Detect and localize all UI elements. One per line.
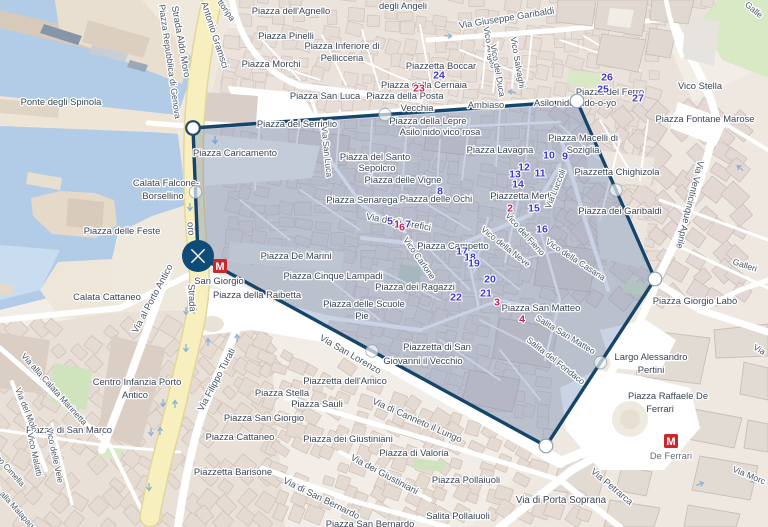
svg-text:Via di Porta Soprana: Via di Porta Soprana [516, 495, 607, 506]
svg-text:Piazza dei Giustiniani: Piazza dei Giustiniani [303, 433, 393, 444]
svg-text:Ambiaso: Ambiaso [468, 99, 504, 110]
svg-text:Piazza Stella: Piazza Stella [255, 387, 310, 398]
svg-text:Piazza delle Vigne: Piazza delle Vigne [365, 174, 442, 185]
svg-text:Piazza dell'Agnello: Piazza dell'Agnello [252, 5, 330, 16]
svg-text:9: 9 [562, 151, 568, 163]
svg-text:Ponte degli Spinola: Ponte degli Spinola [21, 96, 103, 107]
svg-text:Piazza Lavagna: Piazza Lavagna [467, 144, 535, 155]
svg-text:24: 24 [433, 70, 445, 82]
svg-text:Largo Alessandro: Largo Alessandro [615, 351, 688, 362]
svg-text:5: 5 [387, 216, 393, 228]
svg-text:Piazza San Luca: Piazza San Luca [290, 90, 361, 101]
svg-text:Piazza Pollaiuoli: Piazza Pollaiuoli [432, 474, 500, 485]
svg-text:M: M [215, 261, 224, 273]
svg-text:Piazza Campetto: Piazza Campetto [417, 240, 488, 251]
svg-text:Piazza Inferiore di: Piazza Inferiore di [304, 40, 379, 51]
svg-text:3: 3 [494, 297, 500, 309]
svg-text:Borsellino: Borsellino [142, 190, 183, 201]
svg-text:21: 21 [480, 288, 492, 300]
svg-text:7: 7 [405, 219, 411, 231]
svg-text:Antico: Antico [122, 389, 148, 400]
svg-text:4: 4 [519, 314, 525, 326]
svg-text:oro: oro [185, 221, 197, 235]
svg-text:11: 11 [534, 168, 545, 180]
svg-text:Piazza delle Scuole: Piazza delle Scuole [323, 298, 405, 309]
svg-text:Piazza delle Feste: Piazza delle Feste [84, 225, 161, 236]
svg-text:25: 25 [597, 84, 609, 96]
svg-text:Piazza San Giorgio: Piazza San Giorgio [224, 412, 304, 423]
svg-text:Piazza dei Ragazzi: Piazza dei Ragazzi [375, 281, 455, 292]
svg-text:Sepolcro: Sepolcro [358, 162, 395, 173]
svg-text:26: 26 [601, 72, 613, 84]
svg-text:M: M [666, 436, 675, 448]
svg-text:20: 20 [484, 274, 496, 286]
svg-text:Piazza Morchi: Piazza Morchi [242, 58, 301, 69]
svg-text:Piazza della Raibetta: Piazza della Raibetta [213, 289, 302, 300]
svg-text:2: 2 [507, 203, 513, 215]
svg-text:Piazza della Posta: Piazza della Posta [366, 90, 444, 101]
svg-text:Pertini: Pertini [638, 364, 665, 375]
svg-text:Piazza San Bernardo: Piazza San Bernardo [326, 518, 415, 527]
svg-text:Pie: Pie [355, 310, 369, 321]
svg-text:23: 23 [413, 83, 425, 95]
svg-text:Piazza Macelli di: Piazza Macelli di [548, 132, 618, 143]
svg-text:Piazzetta di San: Piazzetta di San [403, 341, 471, 352]
svg-text:Soziglia: Soziglia [567, 144, 601, 155]
svg-text:27: 27 [632, 93, 644, 105]
svg-text:8: 8 [437, 186, 443, 198]
svg-text:Piazzetta Chighizola: Piazzetta Chighizola [575, 166, 661, 177]
svg-text:Piazzetta Barisone: Piazzetta Barisone [194, 466, 272, 477]
svg-text:Piazza San Matteo: Piazza San Matteo [502, 302, 581, 313]
svg-text:Piazza Senarega: Piazza Senarega [326, 194, 398, 205]
svg-text:Piazza del Santo: Piazza del Santo [340, 151, 410, 162]
svg-text:Vico Stella: Vico Stella [678, 80, 723, 91]
svg-text:Piazza De Marini: Piazza De Marini [261, 250, 332, 261]
svg-text:15: 15 [528, 203, 540, 215]
svg-text:Piazza Caricamento: Piazza Caricamento [193, 147, 277, 158]
svg-text:Centro Infanzia Porto: Centro Infanzia Porto [93, 376, 182, 387]
svg-text:Piazza Fontane Marose: Piazza Fontane Marose [655, 113, 754, 124]
svg-text:Piazza Giorgio Labò: Piazza Giorgio Labò [653, 295, 737, 306]
svg-text:Pellicceria: Pellicceria [321, 52, 365, 63]
svg-text:19: 19 [468, 258, 480, 270]
svg-text:16: 16 [536, 224, 548, 236]
svg-text:Piazzetta Merli: Piazzetta Merli [490, 190, 551, 201]
svg-text:14: 14 [512, 179, 524, 191]
svg-text:Asilo nido vico rosa: Asilo nido vico rosa [400, 126, 482, 137]
svg-text:Calata Cattaneo: Calata Cattaneo [73, 291, 141, 302]
svg-text:Piazza della Lepre: Piazza della Lepre [389, 115, 466, 126]
svg-text:Ferrari: Ferrari [646, 403, 674, 414]
svg-text:Piazza Sauli: Piazza Sauli [291, 398, 343, 409]
svg-text:Giovanni il Vecchio: Giovanni il Vecchio [383, 355, 462, 366]
svg-text:Piazza Cattaneo: Piazza Cattaneo [206, 431, 275, 442]
svg-text:De Ferrari: De Ferrari [650, 450, 692, 461]
svg-text:Strada: Strada [186, 284, 198, 313]
svg-text:Piazzetta dell'Amico: Piazzetta dell'Amico [303, 375, 387, 386]
svg-text:Piazza di Valoria: Piazza di Valoria [379, 447, 449, 458]
svg-text:Piazza delle Ochi: Piazza delle Ochi [400, 193, 472, 204]
svg-text:10: 10 [543, 150, 555, 162]
svg-text:Piazza Cinque Lampadi: Piazza Cinque Lampadi [283, 270, 382, 281]
svg-text:22: 22 [450, 292, 462, 304]
svg-text:San Giorgio: San Giorgio [194, 275, 244, 286]
svg-text:Calata Falcone-: Calata Falcone- [133, 177, 199, 188]
svg-text:Vecchia: Vecchia [401, 102, 435, 113]
svg-text:Piazza Raffaele De: Piazza Raffaele De [628, 390, 708, 401]
svg-text:degli Angeli: degli Angeli [379, 0, 427, 11]
svg-text:6: 6 [399, 222, 405, 234]
svg-text:Salita Pollaiuoli: Salita Pollaiuoli [426, 510, 490, 521]
svg-text:Piazza dei Garibaldi: Piazza dei Garibaldi [578, 205, 661, 216]
